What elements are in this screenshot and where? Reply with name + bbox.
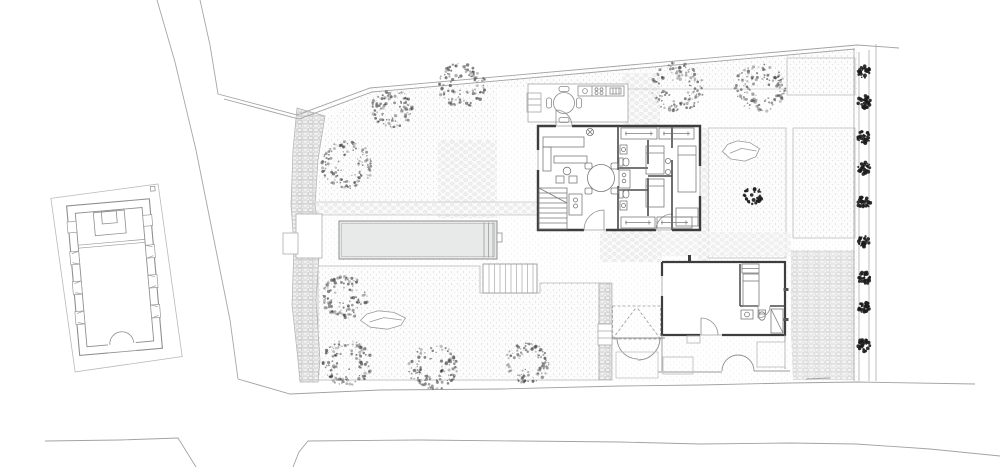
courtyard-bed-b xyxy=(793,128,855,238)
path-entry xyxy=(600,231,662,262)
radiator xyxy=(784,288,789,291)
radiator xyxy=(784,318,789,321)
altar xyxy=(93,210,126,236)
entry-steps xyxy=(598,324,612,345)
stone-courtyard xyxy=(791,250,855,380)
annex-floor xyxy=(662,262,785,335)
garden-ne-rect xyxy=(787,58,855,95)
chimney xyxy=(688,255,691,262)
outdoor-kitchen xyxy=(578,86,624,96)
pool xyxy=(339,221,502,259)
path-pool-band xyxy=(316,202,540,215)
street-south xyxy=(45,438,1000,467)
tree-small xyxy=(857,196,873,209)
parcel-marker xyxy=(150,186,155,191)
tree-small xyxy=(856,130,870,145)
path-above-annex xyxy=(662,232,791,256)
site-plan-drawing xyxy=(0,0,1000,467)
terrace-stair xyxy=(483,264,537,293)
chapel xyxy=(50,183,182,373)
site-plan-page xyxy=(0,0,1000,467)
road-west xyxy=(157,0,238,379)
pool-basin xyxy=(339,221,497,259)
pool-ladder xyxy=(497,233,502,242)
wall-buttress xyxy=(283,233,298,254)
wall-alcove xyxy=(296,214,322,258)
